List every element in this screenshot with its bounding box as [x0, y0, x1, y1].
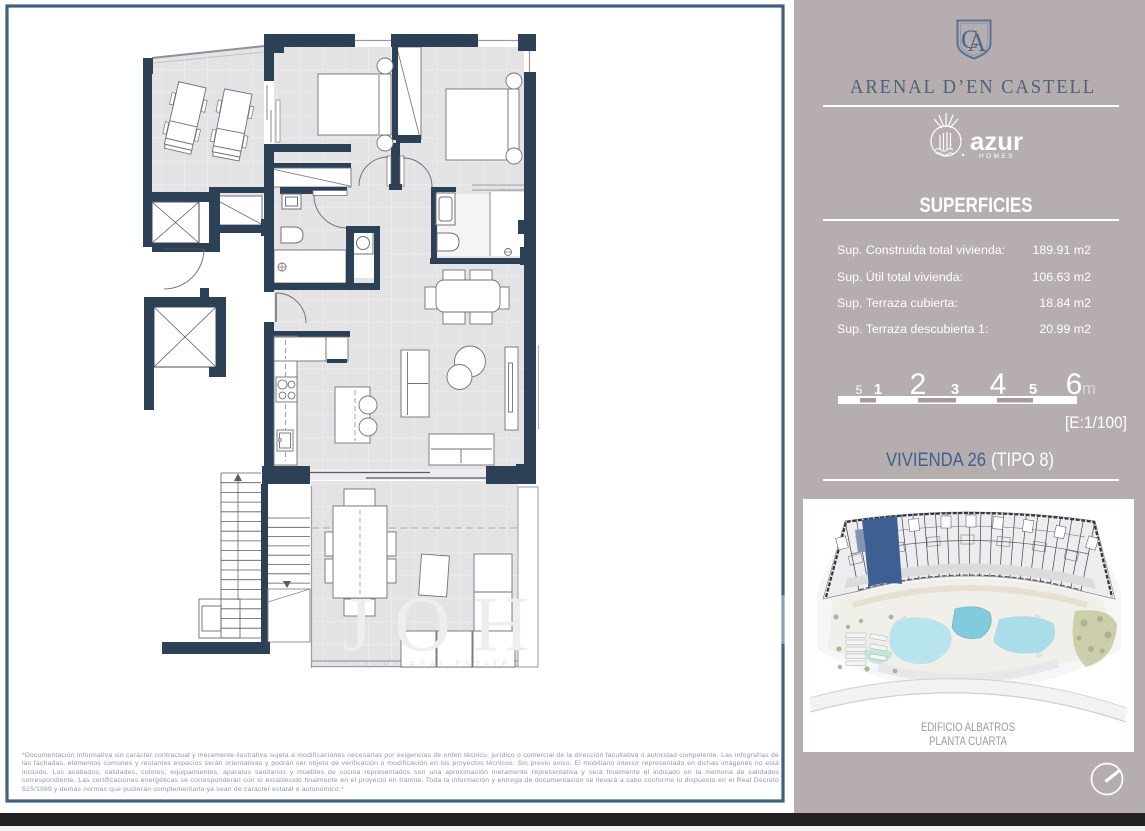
svg-text:EDIFICIO ALBATROS: EDIFICIO ALBATROS: [921, 722, 1015, 734]
svg-text:5: 5: [1029, 381, 1037, 398]
svg-text:ARENAL D’EN CASTELL: ARENAL D’EN CASTELL: [850, 76, 1096, 98]
svg-text:5: 5: [856, 383, 863, 397]
svg-text:azur: azur: [970, 128, 1023, 156]
svg-text:SUPERFICIES: SUPERFICIES: [920, 193, 1033, 217]
svg-text:LUXURY REAL ESTATE: LUXURY REAL ESTATE: [344, 660, 512, 669]
svg-text:JOH: JOH: [342, 580, 551, 667]
svg-text:HOMES: HOMES: [979, 153, 1015, 160]
svg-text:3: 3: [951, 381, 959, 398]
svg-text:m: m: [1082, 379, 1096, 398]
svg-text:A: A: [968, 28, 987, 57]
svg-text:[E:1/100]: [E:1/100]: [1065, 413, 1127, 432]
svg-text:1: 1: [874, 381, 882, 398]
svg-text:VIVIENDA 26: VIVIENDA 26: [886, 449, 986, 471]
svg-text:PLANTA CUARTA: PLANTA CUARTA: [929, 736, 1007, 748]
svg-text:(TIPO 8): (TIPO 8): [991, 449, 1054, 471]
